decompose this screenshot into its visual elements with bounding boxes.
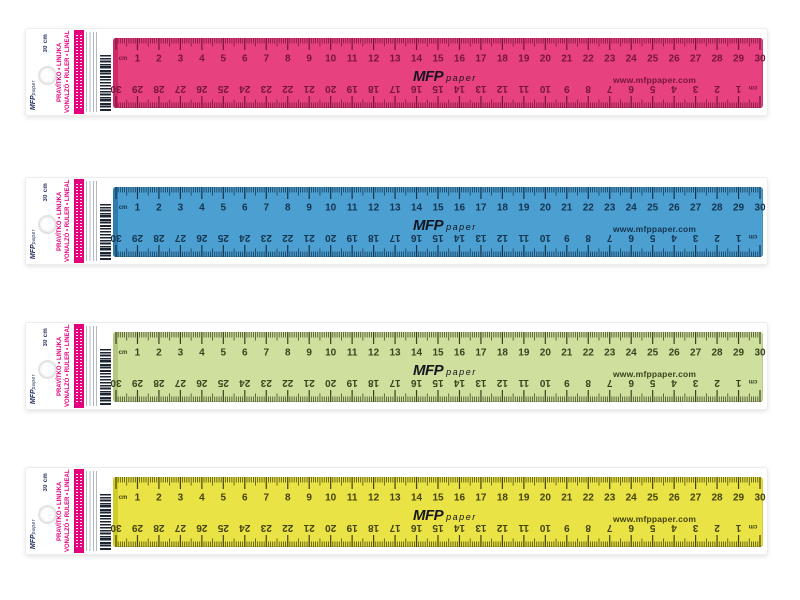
svg-text:25: 25	[217, 83, 229, 94]
svg-text:23: 23	[604, 493, 616, 504]
svg-text:10: 10	[325, 348, 337, 359]
svg-text:29: 29	[733, 203, 745, 214]
website-url: www.mfppaper.com	[613, 224, 696, 234]
svg-text:27: 27	[174, 232, 186, 243]
svg-text:8: 8	[285, 54, 291, 65]
svg-text:29: 29	[131, 232, 143, 243]
svg-text:5: 5	[221, 54, 227, 65]
svg-text:26: 26	[669, 348, 681, 359]
svg-text:3: 3	[178, 348, 184, 359]
svg-text:8: 8	[285, 203, 291, 214]
product-name-line1: PRAVÍTKO • LINIJKA	[57, 468, 63, 554]
svg-text:8: 8	[285, 493, 291, 504]
product-photo-canvas: 30 cm MFPpaper PRAVÍTKO • LINIJKA VONALZ…	[0, 0, 800, 600]
ruler-body: 1122334455667788991010111112121313141415…	[113, 187, 763, 257]
svg-text:18: 18	[497, 203, 509, 214]
magenta-stripe	[74, 324, 84, 408]
svg-text:30: 30	[110, 522, 122, 533]
svg-text:27: 27	[174, 83, 186, 94]
svg-text:2: 2	[714, 83, 720, 94]
ruler-body: 1122334455667788991010111112121313141415…	[113, 332, 763, 402]
svg-text:1: 1	[735, 232, 741, 243]
svg-text:3: 3	[178, 493, 184, 504]
svg-text:28: 28	[153, 522, 165, 533]
svg-text:10: 10	[539, 83, 551, 94]
svg-text:14: 14	[411, 493, 423, 504]
svg-text:2: 2	[156, 493, 162, 504]
svg-text:29: 29	[131, 377, 143, 388]
svg-text:19: 19	[518, 203, 530, 214]
svg-text:29: 29	[733, 54, 745, 65]
brand-mfp: MFP	[30, 244, 37, 259]
svg-text:2: 2	[714, 522, 720, 533]
svg-text:2: 2	[714, 377, 720, 388]
svg-text:6: 6	[242, 203, 248, 214]
svg-text:20: 20	[325, 232, 337, 243]
svg-text:27: 27	[690, 203, 702, 214]
svg-text:7: 7	[607, 522, 613, 533]
svg-text:27: 27	[690, 348, 702, 359]
svg-text:24: 24	[626, 54, 638, 65]
svg-text:21: 21	[561, 54, 573, 65]
svg-text:16: 16	[454, 348, 466, 359]
svg-text:23: 23	[604, 348, 616, 359]
svg-text:30: 30	[754, 54, 766, 65]
brand-paper: paper	[31, 229, 37, 244]
svg-text:29: 29	[131, 83, 143, 94]
svg-text:7: 7	[607, 232, 613, 243]
svg-text:8: 8	[285, 348, 291, 359]
svg-text:22: 22	[282, 83, 294, 94]
svg-text:12: 12	[368, 54, 380, 65]
barcode	[100, 494, 111, 550]
svg-text:17: 17	[389, 377, 401, 388]
website-url: www.mfppaper.com	[613, 514, 696, 524]
svg-text:10: 10	[325, 203, 337, 214]
svg-text:18: 18	[368, 232, 380, 243]
packaging-card: 30 cm MFPpaper PRAVÍTKO • LINIJKA VONALZ…	[25, 467, 768, 555]
svg-text:17: 17	[389, 522, 401, 533]
svg-text:cm: cm	[119, 350, 128, 356]
svg-text:17: 17	[475, 493, 487, 504]
svg-text:26: 26	[196, 522, 208, 533]
svg-text:cm: cm	[749, 84, 758, 90]
svg-text:8: 8	[585, 522, 591, 533]
svg-text:23: 23	[260, 377, 272, 388]
svg-text:2: 2	[156, 203, 162, 214]
svg-text:17: 17	[389, 83, 401, 94]
svg-text:14: 14	[411, 348, 423, 359]
svg-text:19: 19	[346, 232, 358, 243]
brand-mfp: MFP	[30, 95, 37, 110]
svg-text:14: 14	[411, 203, 423, 214]
svg-text:8: 8	[585, 83, 591, 94]
packaging-brand-logo: MFPpaper	[30, 519, 37, 549]
svg-text:30: 30	[754, 493, 766, 504]
brand-paper: paper	[446, 222, 477, 232]
svg-text:20: 20	[540, 203, 552, 214]
svg-text:11: 11	[518, 232, 529, 243]
svg-text:21: 21	[303, 83, 315, 94]
svg-text:cm: cm	[749, 523, 758, 529]
ruler-brand-logo: MFPpaper	[413, 507, 477, 525]
ruler-body: 1122334455667788991010111112121313141415…	[113, 38, 763, 108]
brand-mfp: MFP	[30, 534, 37, 549]
svg-text:22: 22	[282, 522, 294, 533]
svg-text:28: 28	[153, 83, 165, 94]
svg-text:12: 12	[496, 232, 508, 243]
svg-text:25: 25	[647, 54, 659, 65]
svg-text:11: 11	[347, 348, 358, 359]
svg-text:25: 25	[217, 522, 229, 533]
svg-text:7: 7	[263, 54, 269, 65]
svg-text:4: 4	[199, 203, 205, 214]
svg-text:15: 15	[432, 348, 444, 359]
svg-text:14: 14	[411, 54, 423, 65]
svg-text:7: 7	[607, 377, 613, 388]
product-name-line2: VONALZÓ • RULER • LINEAL	[65, 323, 71, 409]
svg-text:25: 25	[647, 203, 659, 214]
svg-text:25: 25	[647, 348, 659, 359]
fine-print-text	[86, 326, 99, 406]
svg-text:21: 21	[561, 348, 573, 359]
packaging-brand-logo: MFPpaper	[30, 229, 37, 259]
svg-text:19: 19	[518, 54, 530, 65]
svg-text:8: 8	[585, 232, 591, 243]
svg-text:13: 13	[390, 203, 402, 214]
brand-paper: paper	[446, 512, 477, 522]
magenta-stripe	[74, 179, 84, 263]
product-name-line2: VONALZÓ • RULER • LINEAL	[65, 29, 71, 115]
svg-text:28: 28	[712, 203, 724, 214]
svg-text:10: 10	[325, 54, 337, 65]
brand-paper: paper	[31, 374, 37, 389]
svg-text:18: 18	[497, 348, 509, 359]
website-url: www.mfppaper.com	[613, 369, 696, 379]
svg-text:15: 15	[432, 54, 444, 65]
svg-text:1: 1	[135, 203, 141, 214]
svg-text:26: 26	[669, 493, 681, 504]
svg-text:26: 26	[669, 203, 681, 214]
brand-mfp: MFP	[30, 389, 37, 404]
packaging-card: 30 cm MFPpaper PRAVÍTKO • LINIJKA VONALZ…	[25, 28, 768, 116]
svg-text:25: 25	[217, 377, 229, 388]
hang-hole	[38, 215, 57, 234]
svg-text:24: 24	[626, 203, 638, 214]
svg-text:30: 30	[110, 232, 122, 243]
svg-text:20: 20	[325, 522, 337, 533]
svg-text:12: 12	[496, 522, 508, 533]
svg-text:19: 19	[346, 377, 358, 388]
svg-text:29: 29	[733, 348, 745, 359]
ruler-product-blue: 30 cm MFPpaper PRAVÍTKO • LINIJKA VONALZ…	[25, 177, 768, 265]
hang-hole	[38, 66, 57, 85]
svg-text:11: 11	[347, 203, 358, 214]
svg-text:2: 2	[156, 348, 162, 359]
product-name-line1: PRAVÍTKO • LINIJKA	[57, 178, 63, 264]
svg-text:18: 18	[368, 522, 380, 533]
svg-text:22: 22	[583, 54, 595, 65]
brand-mfp: MFP	[413, 362, 443, 379]
svg-text:20: 20	[325, 377, 337, 388]
svg-text:17: 17	[475, 203, 487, 214]
svg-text:9: 9	[564, 522, 570, 533]
svg-text:8: 8	[585, 377, 591, 388]
svg-text:7: 7	[607, 83, 613, 94]
svg-text:16: 16	[454, 203, 466, 214]
svg-text:21: 21	[561, 203, 573, 214]
svg-text:30: 30	[754, 348, 766, 359]
svg-text:5: 5	[221, 348, 227, 359]
svg-text:20: 20	[540, 348, 552, 359]
svg-text:12: 12	[368, 203, 380, 214]
svg-text:cm: cm	[119, 56, 128, 62]
svg-text:12: 12	[496, 83, 508, 94]
svg-text:24: 24	[239, 83, 251, 94]
svg-text:1: 1	[135, 493, 141, 504]
svg-text:18: 18	[497, 54, 509, 65]
svg-text:19: 19	[346, 83, 358, 94]
length-label: 30 cm	[43, 473, 49, 492]
svg-text:11: 11	[518, 83, 529, 94]
svg-text:4: 4	[199, 348, 205, 359]
svg-text:17: 17	[475, 348, 487, 359]
magenta-stripe	[74, 469, 84, 553]
packaging-brand-logo: MFPpaper	[30, 374, 37, 404]
brand-mfp: MFP	[413, 68, 443, 85]
website-url: www.mfppaper.com	[613, 75, 696, 85]
svg-text:10: 10	[325, 493, 337, 504]
ruler-product-pink: 30 cm MFPpaper PRAVÍTKO • LINIJKA VONALZ…	[25, 28, 768, 116]
svg-text:4: 4	[199, 54, 205, 65]
hang-hole	[38, 360, 57, 379]
svg-text:26: 26	[669, 54, 681, 65]
svg-text:3: 3	[178, 54, 184, 65]
svg-text:25: 25	[647, 493, 659, 504]
svg-text:28: 28	[712, 348, 724, 359]
packaging-card: 30 cm MFPpaper PRAVÍTKO • LINIJKA VONALZ…	[25, 177, 768, 265]
svg-text:9: 9	[306, 54, 312, 65]
svg-text:10: 10	[539, 522, 551, 533]
svg-text:19: 19	[518, 493, 530, 504]
svg-text:23: 23	[260, 232, 272, 243]
svg-text:24: 24	[239, 377, 251, 388]
svg-text:13: 13	[390, 493, 402, 504]
brand-paper: paper	[446, 73, 477, 83]
svg-text:6: 6	[242, 493, 248, 504]
svg-text:27: 27	[174, 377, 186, 388]
svg-text:22: 22	[282, 232, 294, 243]
svg-text:3: 3	[178, 203, 184, 214]
svg-text:cm: cm	[749, 378, 758, 384]
svg-text:11: 11	[518, 377, 529, 388]
svg-text:18: 18	[368, 83, 380, 94]
magenta-stripe	[74, 30, 84, 114]
ruler-product-green: 30 cm MFPpaper PRAVÍTKO • LINIJKA VONALZ…	[25, 322, 768, 410]
svg-text:26: 26	[196, 377, 208, 388]
svg-text:30: 30	[754, 203, 766, 214]
svg-text:5: 5	[221, 203, 227, 214]
brand-paper: paper	[31, 519, 37, 534]
svg-text:cm: cm	[749, 233, 758, 239]
svg-text:28: 28	[153, 232, 165, 243]
svg-text:10: 10	[539, 232, 551, 243]
fine-print-text	[86, 32, 99, 112]
svg-text:11: 11	[347, 493, 358, 504]
svg-text:9: 9	[564, 377, 570, 388]
svg-text:26: 26	[196, 83, 208, 94]
svg-text:29: 29	[733, 493, 745, 504]
hang-hole	[38, 505, 57, 524]
svg-text:12: 12	[368, 348, 380, 359]
barcode	[100, 349, 111, 405]
barcode	[100, 55, 111, 111]
svg-text:13: 13	[390, 54, 402, 65]
packaging-brand-logo: MFPpaper	[30, 80, 37, 110]
svg-text:9: 9	[306, 493, 312, 504]
svg-text:24: 24	[239, 232, 251, 243]
svg-text:9: 9	[564, 232, 570, 243]
svg-text:7: 7	[263, 348, 269, 359]
product-name-line2: VONALZÓ • RULER • LINEAL	[65, 178, 71, 264]
svg-text:16: 16	[454, 493, 466, 504]
ruler-brand-logo: MFPpaper	[413, 362, 477, 380]
svg-text:6: 6	[242, 348, 248, 359]
length-label: 30 cm	[43, 34, 49, 53]
svg-text:17: 17	[475, 54, 487, 65]
svg-text:20: 20	[540, 493, 552, 504]
svg-text:26: 26	[196, 232, 208, 243]
barcode	[100, 204, 111, 260]
brand-paper: paper	[31, 80, 37, 95]
svg-text:7: 7	[263, 203, 269, 214]
svg-text:21: 21	[303, 377, 315, 388]
svg-text:21: 21	[561, 493, 573, 504]
product-name-line1: PRAVÍTKO • LINIJKA	[57, 29, 63, 115]
svg-text:9: 9	[306, 348, 312, 359]
svg-text:27: 27	[690, 54, 702, 65]
ruler-body: 1122334455667788991010111112121313141415…	[113, 477, 763, 547]
length-label: 30 cm	[43, 328, 49, 347]
svg-text:10: 10	[539, 377, 551, 388]
svg-text:12: 12	[368, 493, 380, 504]
svg-text:24: 24	[626, 493, 638, 504]
svg-text:27: 27	[174, 522, 186, 533]
svg-text:2: 2	[156, 54, 162, 65]
svg-text:23: 23	[260, 522, 272, 533]
ruler-product-yellow: 30 cm MFPpaper PRAVÍTKO • LINIJKA VONALZ…	[25, 467, 768, 555]
svg-text:11: 11	[347, 54, 358, 65]
svg-text:16: 16	[454, 54, 466, 65]
svg-text:17: 17	[389, 232, 401, 243]
svg-text:22: 22	[583, 203, 595, 214]
packaging-card: 30 cm MFPpaper PRAVÍTKO • LINIJKA VONALZ…	[25, 322, 768, 410]
product-name-line2: VONALZÓ • RULER • LINEAL	[65, 468, 71, 554]
svg-text:1: 1	[735, 377, 741, 388]
svg-text:22: 22	[583, 348, 595, 359]
svg-text:2: 2	[714, 232, 720, 243]
svg-text:13: 13	[390, 348, 402, 359]
svg-text:25: 25	[217, 232, 229, 243]
svg-text:30: 30	[110, 377, 122, 388]
svg-text:11: 11	[518, 522, 529, 533]
svg-text:27: 27	[690, 493, 702, 504]
svg-text:1: 1	[135, 348, 141, 359]
svg-text:1: 1	[135, 54, 141, 65]
svg-text:7: 7	[263, 493, 269, 504]
svg-text:29: 29	[131, 522, 143, 533]
svg-text:22: 22	[282, 377, 294, 388]
svg-text:24: 24	[626, 348, 638, 359]
ruler-brand-logo: MFPpaper	[413, 68, 477, 86]
svg-text:6: 6	[242, 54, 248, 65]
svg-text:30: 30	[110, 83, 122, 94]
svg-text:28: 28	[712, 493, 724, 504]
svg-text:23: 23	[604, 203, 616, 214]
svg-text:23: 23	[260, 83, 272, 94]
svg-text:24: 24	[239, 522, 251, 533]
svg-text:12: 12	[496, 377, 508, 388]
fine-print-text	[86, 471, 99, 551]
svg-text:cm: cm	[119, 495, 128, 501]
brand-mfp: MFP	[413, 507, 443, 524]
svg-text:4: 4	[199, 493, 205, 504]
svg-text:1: 1	[735, 83, 741, 94]
ruler-brand-logo: MFPpaper	[413, 217, 477, 235]
svg-text:19: 19	[518, 348, 530, 359]
svg-text:23: 23	[604, 54, 616, 65]
svg-text:1: 1	[735, 522, 741, 533]
fine-print-text	[86, 181, 99, 261]
svg-text:cm: cm	[119, 205, 128, 211]
svg-text:28: 28	[712, 54, 724, 65]
svg-text:15: 15	[432, 493, 444, 504]
length-label: 30 cm	[43, 183, 49, 202]
svg-text:9: 9	[564, 83, 570, 94]
svg-text:21: 21	[303, 522, 315, 533]
brand-mfp: MFP	[413, 217, 443, 234]
svg-text:20: 20	[325, 83, 337, 94]
svg-text:21: 21	[303, 232, 315, 243]
svg-text:20: 20	[540, 54, 552, 65]
product-name-line1: PRAVÍTKO • LINIJKA	[57, 323, 63, 409]
svg-text:28: 28	[153, 377, 165, 388]
svg-text:18: 18	[368, 377, 380, 388]
svg-text:5: 5	[221, 493, 227, 504]
svg-text:15: 15	[432, 203, 444, 214]
svg-text:18: 18	[497, 493, 509, 504]
brand-paper: paper	[446, 367, 477, 377]
svg-text:9: 9	[306, 203, 312, 214]
svg-text:19: 19	[346, 522, 358, 533]
svg-text:22: 22	[583, 493, 595, 504]
